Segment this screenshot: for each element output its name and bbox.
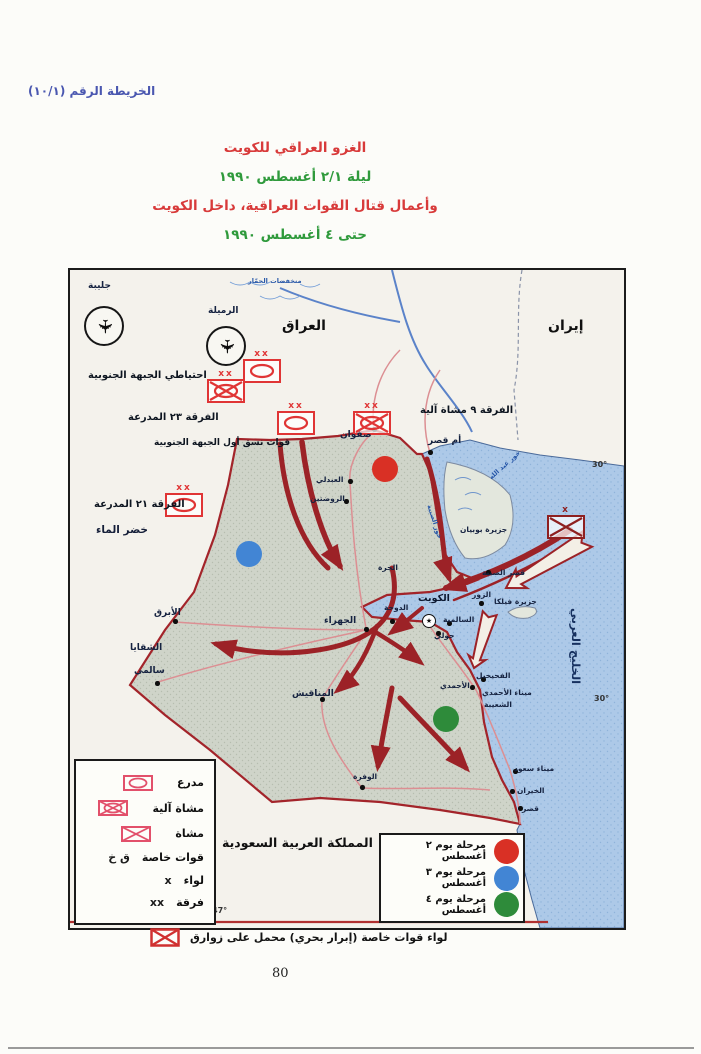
- first-echelon-label: قوات نسق أول الجبهة الجنوبية: [154, 438, 290, 448]
- map-label: الجهراء: [324, 616, 356, 626]
- legend-unit-types: مدرع مشاة آلية: [74, 759, 216, 925]
- phase-legend-row: مرحلة يوم ٤ أغسطس: [381, 892, 523, 917]
- map-label: ميناء الأحمدي: [482, 689, 532, 698]
- map-label: ميناء سعود: [514, 765, 554, 774]
- legend-symbol-text: x: [164, 874, 171, 887]
- map-label: الشقايا: [130, 643, 162, 653]
- map-label: الأحمدي: [440, 682, 470, 691]
- town-dot: [470, 685, 475, 690]
- map-label: 30°: [592, 460, 607, 469]
- country-label-iraq: العراق: [282, 318, 326, 334]
- phase-marker: [433, 706, 459, 732]
- gulf-label: الخليج العربي: [569, 608, 582, 684]
- city-label-kuwait: الكويت: [418, 594, 450, 605]
- map-caption: لواء قوات خاصة (إبرار بحري) محمل على زوا…: [150, 928, 448, 947]
- kuwait-invasion-map: ★ ✈ ✈ xx: [68, 268, 626, 930]
- map-reference-number: الخريطة الرقم (١٠/١): [28, 84, 155, 98]
- town-dot: [173, 619, 178, 624]
- airbase-circle: ✈: [206, 326, 246, 366]
- map-label: السالمية: [443, 616, 474, 625]
- page-number: 80: [272, 966, 289, 981]
- map-label: الخيران: [517, 787, 545, 796]
- phase-legend-label: مرحلة يوم ٢ أغسطس: [385, 840, 486, 862]
- town-dot: [360, 785, 365, 790]
- legend-label: مشاة: [175, 827, 204, 840]
- legend-symbol-text: xx: [150, 896, 164, 909]
- map-label: جزيرة فيلكا: [494, 598, 537, 607]
- phase-legend-row: مرحلة يوم ٢ أغسطس: [381, 839, 523, 864]
- map-label: الوفرة: [353, 773, 377, 782]
- country-label-saudi-arabia: المملكة العربية السعودية: [222, 836, 373, 850]
- unit-symbol: xx: [206, 370, 246, 403]
- town-dot: [348, 479, 353, 484]
- legend-phases: مرحلة يوم ٢ أغسطس مرحلة يوم ٣ أغسطس مرحل…: [379, 833, 525, 923]
- map-title-line: ليلة ٢/١ أغسطس ١٩٩٠: [105, 163, 485, 192]
- division-21-armored-label: الفرقة ٢١ المدرعة: [94, 499, 185, 511]
- caption-text: لواء قوات خاصة (إبرار بحري) محمل على زوا…: [190, 931, 448, 944]
- unit-type-icon: [123, 775, 153, 791]
- scan-artifact-line: [8, 1047, 694, 1049]
- map-label: الشعيبة: [484, 701, 512, 710]
- map-label: الجرة: [378, 564, 398, 573]
- map-label: سالمي: [134, 666, 165, 676]
- legend-row: مشاة: [76, 826, 214, 842]
- town-dot: [155, 681, 160, 686]
- unit-symbol: x: [546, 506, 586, 539]
- unit-echelon: xx: [206, 370, 246, 379]
- airbase-label-jalibah: جليبة: [88, 281, 111, 291]
- map-label: جزيرة بوبيان: [460, 526, 507, 535]
- scanned-book-page: الخريطة الرقم (١٠/١) الغزو العراقي للكوي…: [0, 0, 701, 1054]
- map-label: حولي: [434, 632, 455, 641]
- division-23-armored-label: الفرقة ٢٣ المدرعة: [128, 412, 219, 424]
- map-label: خضر الماء: [96, 524, 148, 536]
- legend-label: مشاة آلية: [152, 802, 204, 815]
- legend-label: قوات خاصة: [142, 851, 204, 864]
- map-title-line: حتى ٤ أغسطس ١٩٩٠: [105, 221, 485, 250]
- town-dot: [510, 789, 515, 794]
- unit-echelon: x: [546, 506, 586, 515]
- legend-symbol-text: ق خ: [108, 851, 130, 864]
- fighter-jet-icon: ✈: [216, 338, 235, 354]
- phase-legend-dot: [494, 866, 519, 891]
- airbase-label-rumaila: الرميلة: [208, 306, 238, 316]
- hammar-depressions-label: منخفضات الحمّار: [248, 278, 302, 285]
- phase-legend-dot: [494, 892, 519, 917]
- fighter-jet-icon: ✈: [94, 318, 113, 334]
- map-label: العبدلي: [316, 476, 343, 485]
- map-label: الدوحة: [384, 604, 408, 613]
- legend-label: فرقة: [176, 896, 204, 909]
- phase-marker: [236, 541, 262, 567]
- country-label-iran: إيران: [548, 318, 584, 334]
- map-label: قصر الصبية: [482, 569, 525, 578]
- map-label: الروضتين: [310, 495, 345, 504]
- town-dot: [390, 619, 395, 624]
- unit-echelon: xx: [276, 402, 316, 411]
- phase-marker: [372, 456, 398, 482]
- phase-legend-dot: [494, 839, 519, 864]
- legend-label: مدرع: [177, 776, 204, 789]
- unit-symbol: xx: [276, 402, 316, 435]
- airbase-circle: ✈: [84, 306, 124, 346]
- map-label: المناقيش: [292, 689, 334, 699]
- legend-row: ق خ قوات خاصة: [76, 851, 214, 864]
- town-dot: [428, 450, 433, 455]
- unit-echelon: xx: [242, 350, 282, 359]
- town-dot: [364, 627, 369, 632]
- unit-symbol: xx: [242, 350, 282, 383]
- legend-row: مشاة آلية: [76, 800, 214, 816]
- map-label: قصر: [522, 805, 539, 814]
- map-title-line: وأعمال قتال القوات العراقية، داخل الكويت: [105, 192, 485, 221]
- special-forces-brigade-icon: [150, 928, 180, 947]
- map-label: 30°: [594, 694, 609, 703]
- southern-front-reserve-label: احتياطي الجبهة الجنوبية: [88, 370, 207, 382]
- unit-type-icon: [121, 826, 151, 842]
- iran-border: [514, 270, 522, 440]
- map-title-line: الغزو العراقي للكويت: [105, 134, 485, 163]
- legend-row: xx فرقة: [76, 896, 214, 909]
- capital-symbol-kuwait-city: ★: [422, 614, 436, 628]
- unit-echelon: xx: [352, 402, 392, 411]
- legend-row: x لواء: [76, 874, 214, 887]
- town-dot: [479, 601, 484, 606]
- map-label: أم قصر: [428, 436, 461, 446]
- unit-echelon: xx: [164, 484, 204, 493]
- map-label: الفحيحيل: [476, 672, 510, 681]
- phase-legend-row: مرحلة يوم ٣ أغسطس: [381, 866, 523, 891]
- legend-label: لواء: [184, 874, 204, 887]
- map-title: الغزو العراقي للكويتليلة ٢/١ أغسطس ١٩٩٠و…: [105, 134, 485, 250]
- legend-row: مدرع: [76, 775, 214, 791]
- map-label: الأبرق: [154, 608, 181, 618]
- phase-legend-label: مرحلة يوم ٣ أغسطس: [385, 867, 486, 889]
- phase-legend-label: مرحلة يوم ٤ أغسطس: [385, 894, 486, 916]
- map-label: الزور: [472, 591, 491, 600]
- unit-type-icon: [98, 800, 128, 816]
- map-label: صفوان: [340, 430, 372, 440]
- division-9-mech-label: الفرقة ٩ مشاة آلية: [420, 405, 513, 417]
